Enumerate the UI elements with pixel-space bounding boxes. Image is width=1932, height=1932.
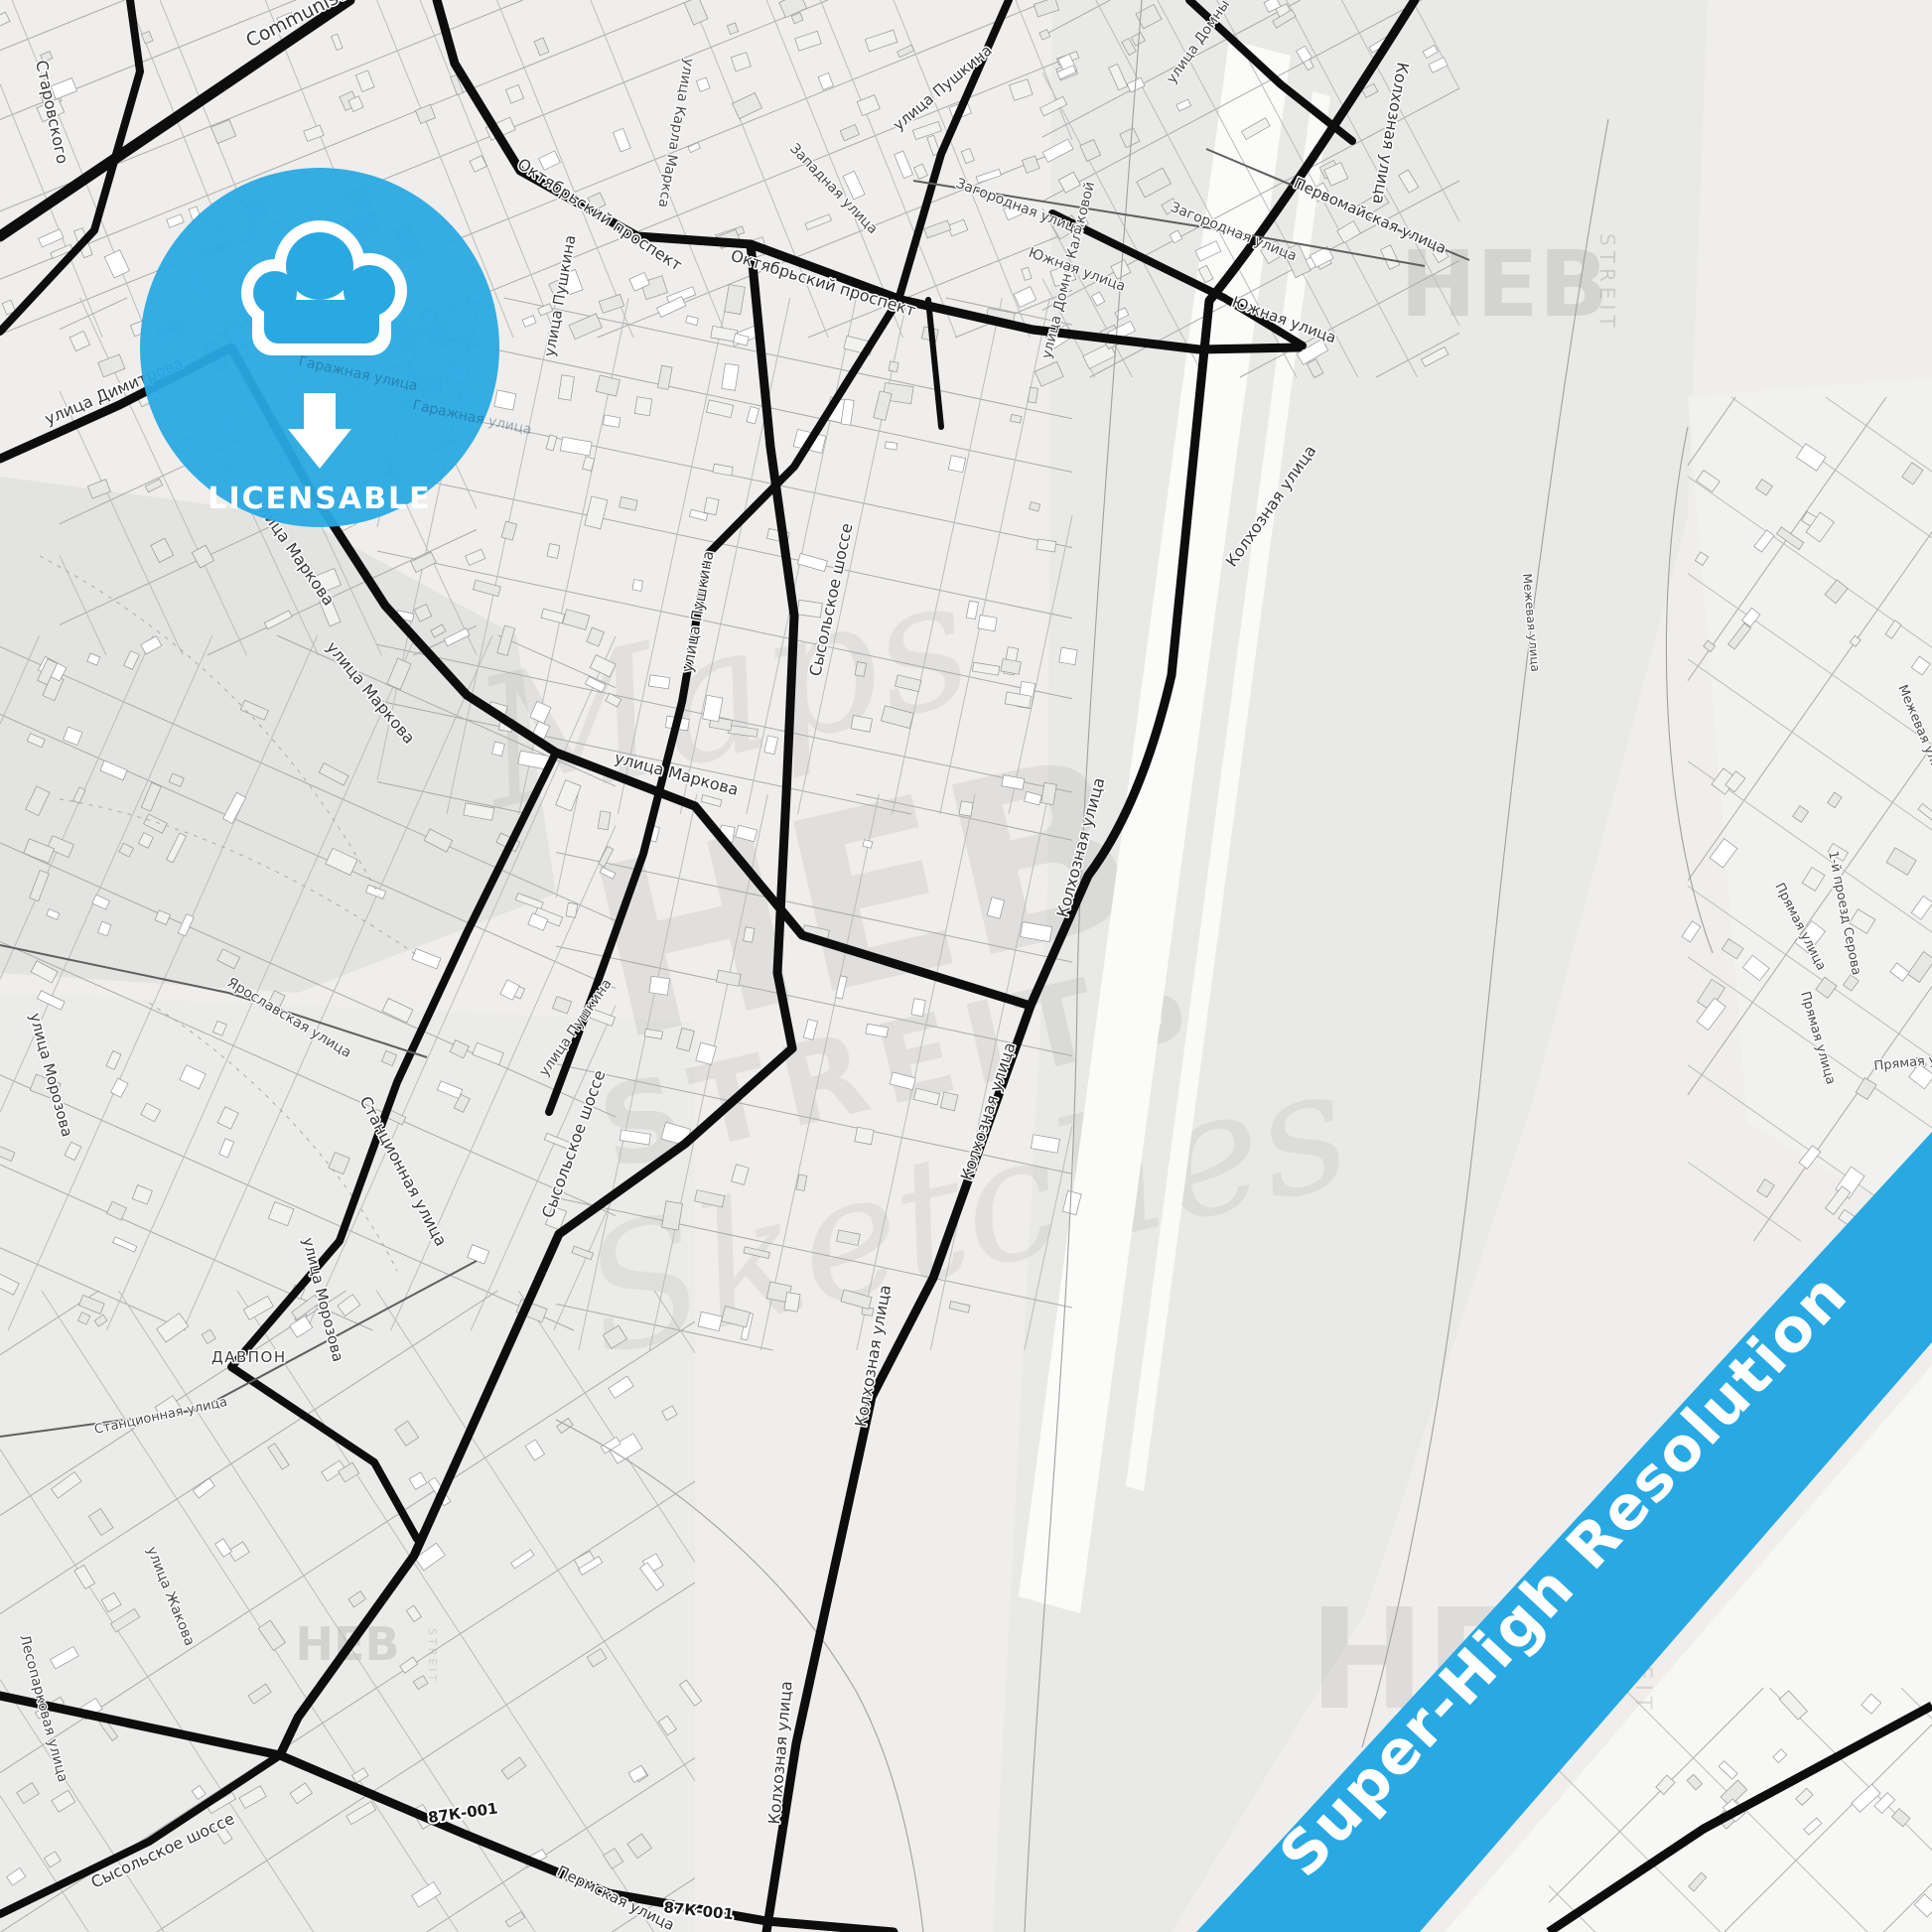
building [547,544,560,559]
building [840,124,859,140]
building [914,164,928,179]
building [649,976,670,995]
building [98,354,125,377]
building [657,365,672,389]
building [1022,156,1039,174]
building [541,609,565,623]
building [596,375,620,396]
building [415,104,435,123]
building [505,84,523,103]
building [885,442,897,450]
building [976,169,1001,183]
building [940,1092,958,1111]
building [501,521,517,540]
building [167,214,184,227]
road-stub [928,300,941,427]
street-label: Старовского [32,59,72,166]
south-district-area [0,993,695,1932]
building [711,326,738,342]
building [104,250,129,278]
building [145,479,162,491]
building [727,23,738,35]
building [684,0,708,25]
building [948,219,968,236]
map-canvas: Maps HEB STREITS Sketches HEB STREIT HEB… [0,0,1932,1932]
road-starovskogo [0,0,140,332]
building [1059,647,1077,664]
building [961,148,974,163]
street-label: Западная улица [786,141,881,237]
building [948,456,965,473]
building [1028,387,1037,403]
vector-street-map: Maps HEB STREITS Sketches HEB STREIT HEB… [0,0,1932,1932]
building [494,390,516,410]
building [889,361,898,372]
building [696,77,710,91]
building [560,437,592,456]
building [473,580,500,597]
building [1011,414,1022,423]
building [855,1127,874,1145]
watermark-streit-topright: STREIT [1595,233,1619,333]
minor-street [1688,1162,1801,1241]
watermark-streit-bottomleft: STREIT [426,1628,439,1684]
building [732,93,761,119]
building [1014,287,1036,308]
building [0,12,10,28]
building [634,397,652,416]
licensable-badge[interactable]: LICENSABLE [140,168,499,527]
building [546,435,557,451]
street-label: улица Пушкина [540,233,579,357]
building [707,400,734,418]
building [39,229,64,247]
badge-label: LICENSABLE [207,482,431,516]
building [731,53,751,71]
building [747,407,759,424]
building [613,128,630,151]
building [966,601,978,620]
building [972,662,999,675]
building [874,391,892,421]
building [585,496,608,529]
building [632,580,643,592]
building [911,999,925,1017]
building [603,415,620,427]
building [686,316,699,326]
building [959,801,973,816]
building [865,30,897,52]
building [569,314,602,340]
place-label: ДАВПОН [211,1348,287,1366]
building [1039,30,1050,41]
building [1030,502,1040,512]
building [725,285,746,315]
building [1022,267,1032,280]
building [599,294,623,313]
building [141,31,153,44]
building [566,902,578,917]
building [412,948,441,968]
building [648,675,670,689]
building [722,363,739,390]
building [688,143,701,153]
building [818,73,833,90]
building [466,549,485,565]
building [534,38,549,56]
building [713,464,733,476]
building [304,125,324,141]
building [1682,921,1701,942]
minor-street [0,0,125,51]
building [620,497,638,511]
building [978,615,997,630]
building [924,220,951,238]
building [805,214,831,230]
building [558,375,574,401]
building [795,31,822,51]
building [704,497,719,515]
building [552,997,571,1015]
building [779,0,807,18]
building [522,316,536,328]
building [355,70,374,91]
building [895,151,913,179]
building [332,34,343,50]
building [784,1293,800,1312]
building [1757,1179,1774,1197]
building [411,552,437,573]
street-label: улица Карла Маркса [655,57,697,208]
building [912,121,941,139]
building [583,457,595,472]
minor-street [12,0,148,338]
building [69,331,89,350]
building [210,119,235,143]
building [1010,79,1034,101]
minor-street [60,298,127,330]
